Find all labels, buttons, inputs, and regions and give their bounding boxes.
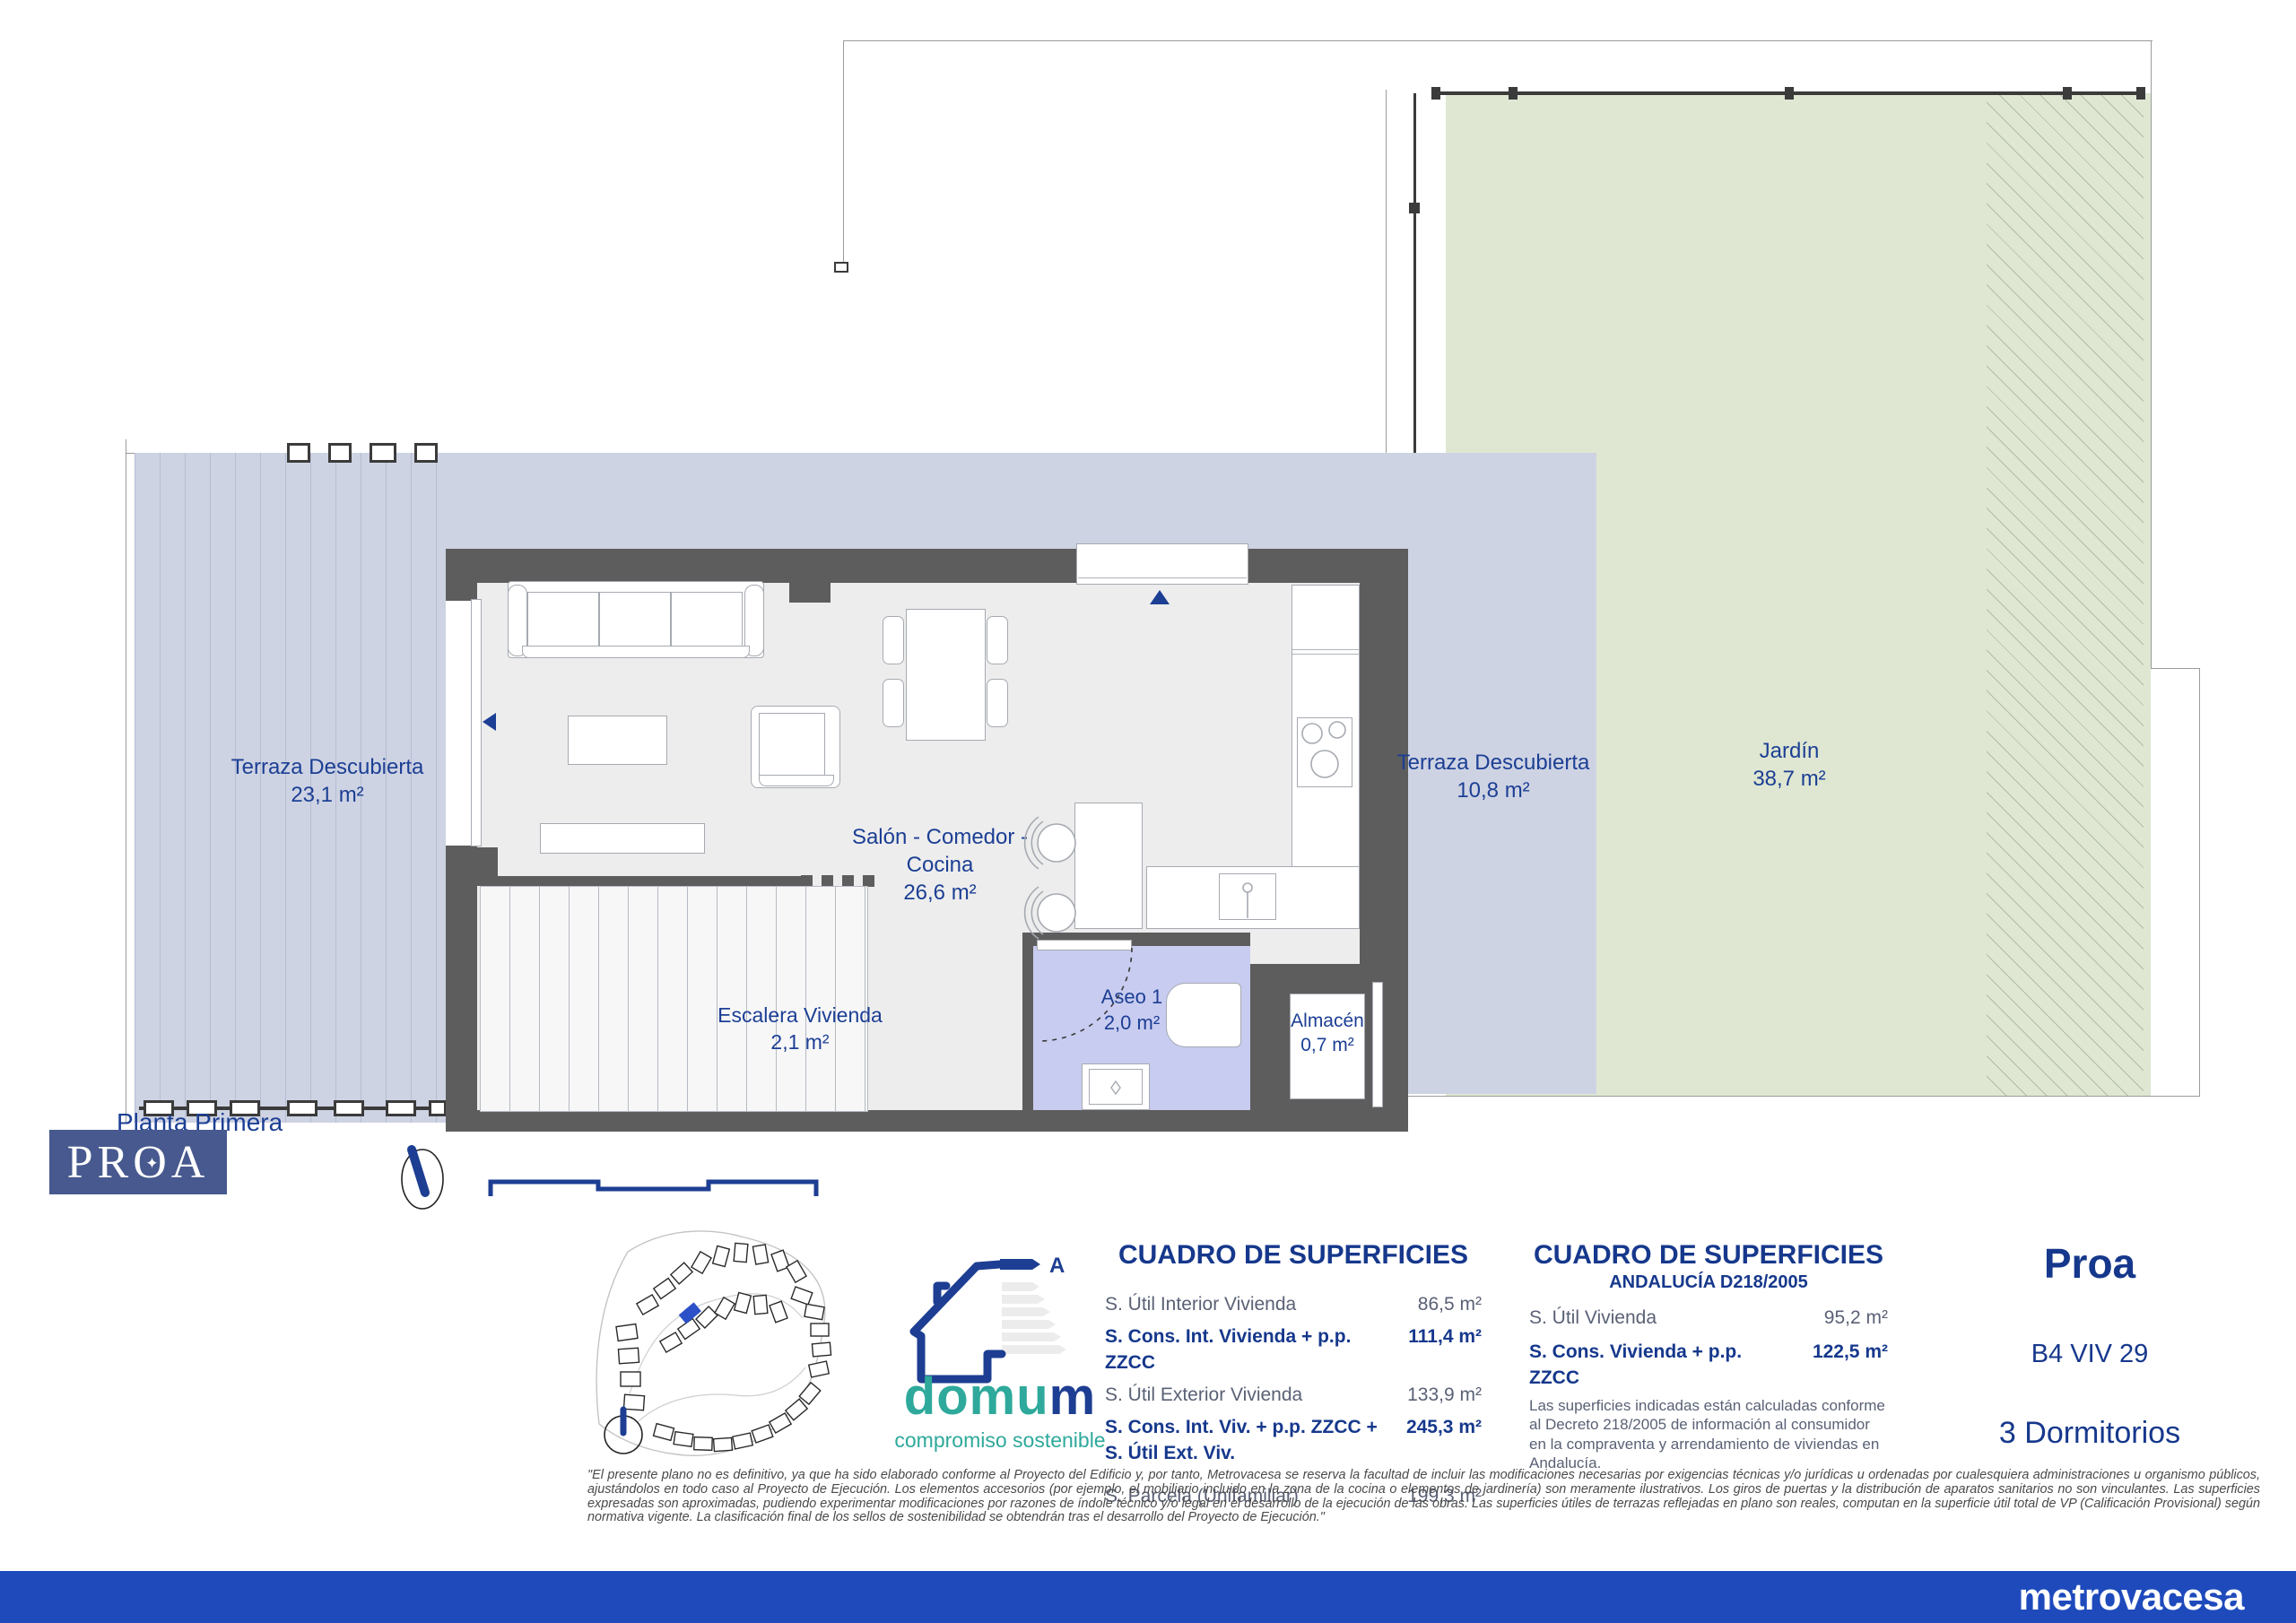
counter-divider (1292, 654, 1359, 655)
site-plan-north-icon (604, 1410, 642, 1454)
plot-boundary-line (843, 40, 844, 269)
boundary-marker (834, 262, 848, 273)
room-area: 26,6 m² (832, 879, 1048, 907)
plot-boundary-line (2151, 668, 2200, 669)
wall-aseo-left (1022, 933, 1033, 1110)
table-row: S. Cons. Vivienda + p.p. ZZCC122,5 m² (1529, 1340, 1888, 1391)
dining-chair (987, 616, 1008, 664)
kitchen-window (1076, 543, 1248, 585)
cooktop (1297, 717, 1352, 787)
room-label-terraza-right: Terraza Descubierta 10,8 m² (1386, 749, 1601, 804)
window-glass-line (1078, 577, 1247, 578)
table-note: Las superficies indicadas están calculad… (1529, 1396, 1888, 1472)
sofa-cushion (527, 592, 599, 647)
domum-tagline: compromiso sostenible (883, 1428, 1117, 1453)
room-area: 38,7 m² (1691, 765, 1888, 793)
room-label-aseo: Aseo 1 2,0 m² (1051, 985, 1213, 1036)
room-area: 10,8 m² (1386, 777, 1601, 804)
room-area: 23,1 m² (220, 781, 435, 809)
unit-bedrooms: 3 Dormitorios (1955, 1416, 2224, 1451)
scale-bar (491, 1182, 816, 1196)
table-title: CUADRO DE SUPERFICIES (1105, 1240, 1482, 1271)
washbasin-inner (1089, 1069, 1143, 1105)
table-row: S. Útil Exterior Vivienda133,9 m² (1105, 1383, 1482, 1408)
garden-hatch-strip (1987, 93, 2144, 1096)
site-plan-unit-highlight (679, 1302, 701, 1324)
compass-star-icon: ✦ (145, 1155, 158, 1173)
room-label-salon: Salón - Comedor - Cocina 26,6 m² (832, 823, 1048, 907)
fence-post (287, 1100, 317, 1116)
room-name: Salón - Comedor - (852, 825, 1028, 849)
wall-salon-stairs (480, 876, 801, 886)
fence-post (1785, 87, 1794, 100)
room-name: Escalera Vivienda (717, 1003, 883, 1027)
plot-boundary-line (1386, 90, 1387, 453)
surface-table-andalucia: CUADRO DE SUPERFICIES ANDALUCÍA D218/200… (1529, 1240, 1888, 1472)
fence-post (2063, 87, 2072, 100)
dining-chair (987, 679, 1008, 727)
plot-boundary-line (1408, 1096, 2199, 1097)
room-name: Jardín (1760, 739, 1820, 763)
fence-post (429, 1100, 447, 1116)
table-title: CUADRO DE SUPERFICIES (1529, 1240, 1888, 1271)
aseo-door-leaf (1037, 940, 1132, 950)
armchair-front (759, 775, 834, 786)
fence-post (334, 1100, 364, 1116)
pergola-post (414, 443, 438, 463)
metrovacesa-logo: metrovacesa (2019, 1575, 2244, 1619)
table-row: S. Cons. Int. Viv. + p.p. ZZCC + S. Útil… (1105, 1415, 1482, 1466)
unit-code: B4 VIV 29 (1955, 1340, 2224, 1369)
room-area: 2,0 m² (1051, 1011, 1213, 1037)
counter-divider (1292, 649, 1359, 650)
entrance-arrow-icon (1150, 590, 1170, 604)
wall-top (446, 549, 1078, 583)
wall-step (789, 581, 831, 603)
sofa-cushion (671, 592, 743, 647)
pergola-post (287, 443, 310, 463)
sofa-front (522, 646, 750, 658)
energy-arrow-a (1000, 1259, 1040, 1270)
table-subtitle: ANDALUCÍA D218/2005 (1529, 1272, 1888, 1293)
legal-disclaimer: "El presente plano no es definitivo, ya … (587, 1469, 2260, 1525)
room-label-almacen: Almacén 0,7 m² (1256, 1009, 1399, 1058)
kitchen-peninsula (1074, 803, 1143, 929)
site-plan-map (596, 1231, 831, 1455)
sideboard (540, 823, 705, 854)
terrace-band-top (446, 453, 1446, 551)
plot-boundary-line (843, 40, 2152, 41)
table-row: S. Útil Interior Vivienda86,5 m² (1105, 1292, 1482, 1317)
table-row: S. Cons. Int. Vivienda + p.p. ZZCC111,4 … (1105, 1324, 1482, 1376)
room-name: Terraza Descubierta (231, 755, 424, 779)
table-row: S. Útil Vivienda95,2 m² (1529, 1306, 1888, 1331)
room-area: 0,7 m² (1256, 1033, 1399, 1057)
pergola-post (370, 443, 396, 463)
fence-post (1431, 87, 1440, 100)
plot-boundary-line (2199, 668, 2200, 1097)
armchair-seat (759, 713, 825, 776)
room-area: 2,1 m² (692, 1029, 908, 1056)
unit-name: Proa (1955, 1239, 2224, 1288)
kitchen-sink (1219, 873, 1276, 920)
room-name: Terraza Descubierta (1397, 751, 1590, 775)
fence-post (386, 1100, 416, 1116)
wall-bottom (446, 1110, 1408, 1132)
room-label-jardin: Jardín 38,7 m² (1691, 737, 1888, 793)
fence-post (2136, 87, 2145, 100)
plot-boundary-line (126, 439, 126, 1123)
staircase (480, 886, 868, 1112)
wall-left (446, 549, 477, 601)
fence-post (1409, 203, 1420, 213)
domum-logo: domum compromiso sostenible (883, 1359, 1117, 1453)
floorplan-sheet: Escalera Vivienda 2,1 m² Aseo 1 2,0 m² A… (0, 0, 2296, 1623)
plot-boundary-line (2151, 40, 2152, 668)
fence-post (1509, 87, 1518, 100)
energy-class-label: A (1049, 1254, 1065, 1279)
coffee-table (568, 716, 667, 765)
room-name: Almacén (1291, 1011, 1364, 1031)
dining-table (906, 609, 986, 741)
wall-left (446, 846, 477, 1132)
room-name: Aseo 1 (1101, 985, 1163, 1008)
footer-bar: metrovacesa (0, 1571, 2296, 1623)
dining-chair (883, 679, 904, 727)
proa-logo: PRO✦A (49, 1130, 227, 1194)
floor-plan: Escalera Vivienda 2,1 m² Aseo 1 2,0 m² A… (0, 0, 2296, 1166)
room-label-terraza-left: Terraza Descubierta 23,1 m² (220, 753, 435, 809)
pergola-post (328, 443, 352, 463)
room-label-escalera: Escalera Vivienda 2,1 m² (692, 1002, 908, 1056)
room-name: Cocina (832, 851, 1048, 879)
dining-chair (883, 616, 904, 664)
unit-info: Proa B4 VIV 29 3 Dormitorios (1955, 1239, 2224, 1451)
terrace-access-arrow-icon (483, 713, 496, 731)
sofa-cushion (599, 592, 671, 647)
sliding-door-leaf (471, 599, 482, 846)
